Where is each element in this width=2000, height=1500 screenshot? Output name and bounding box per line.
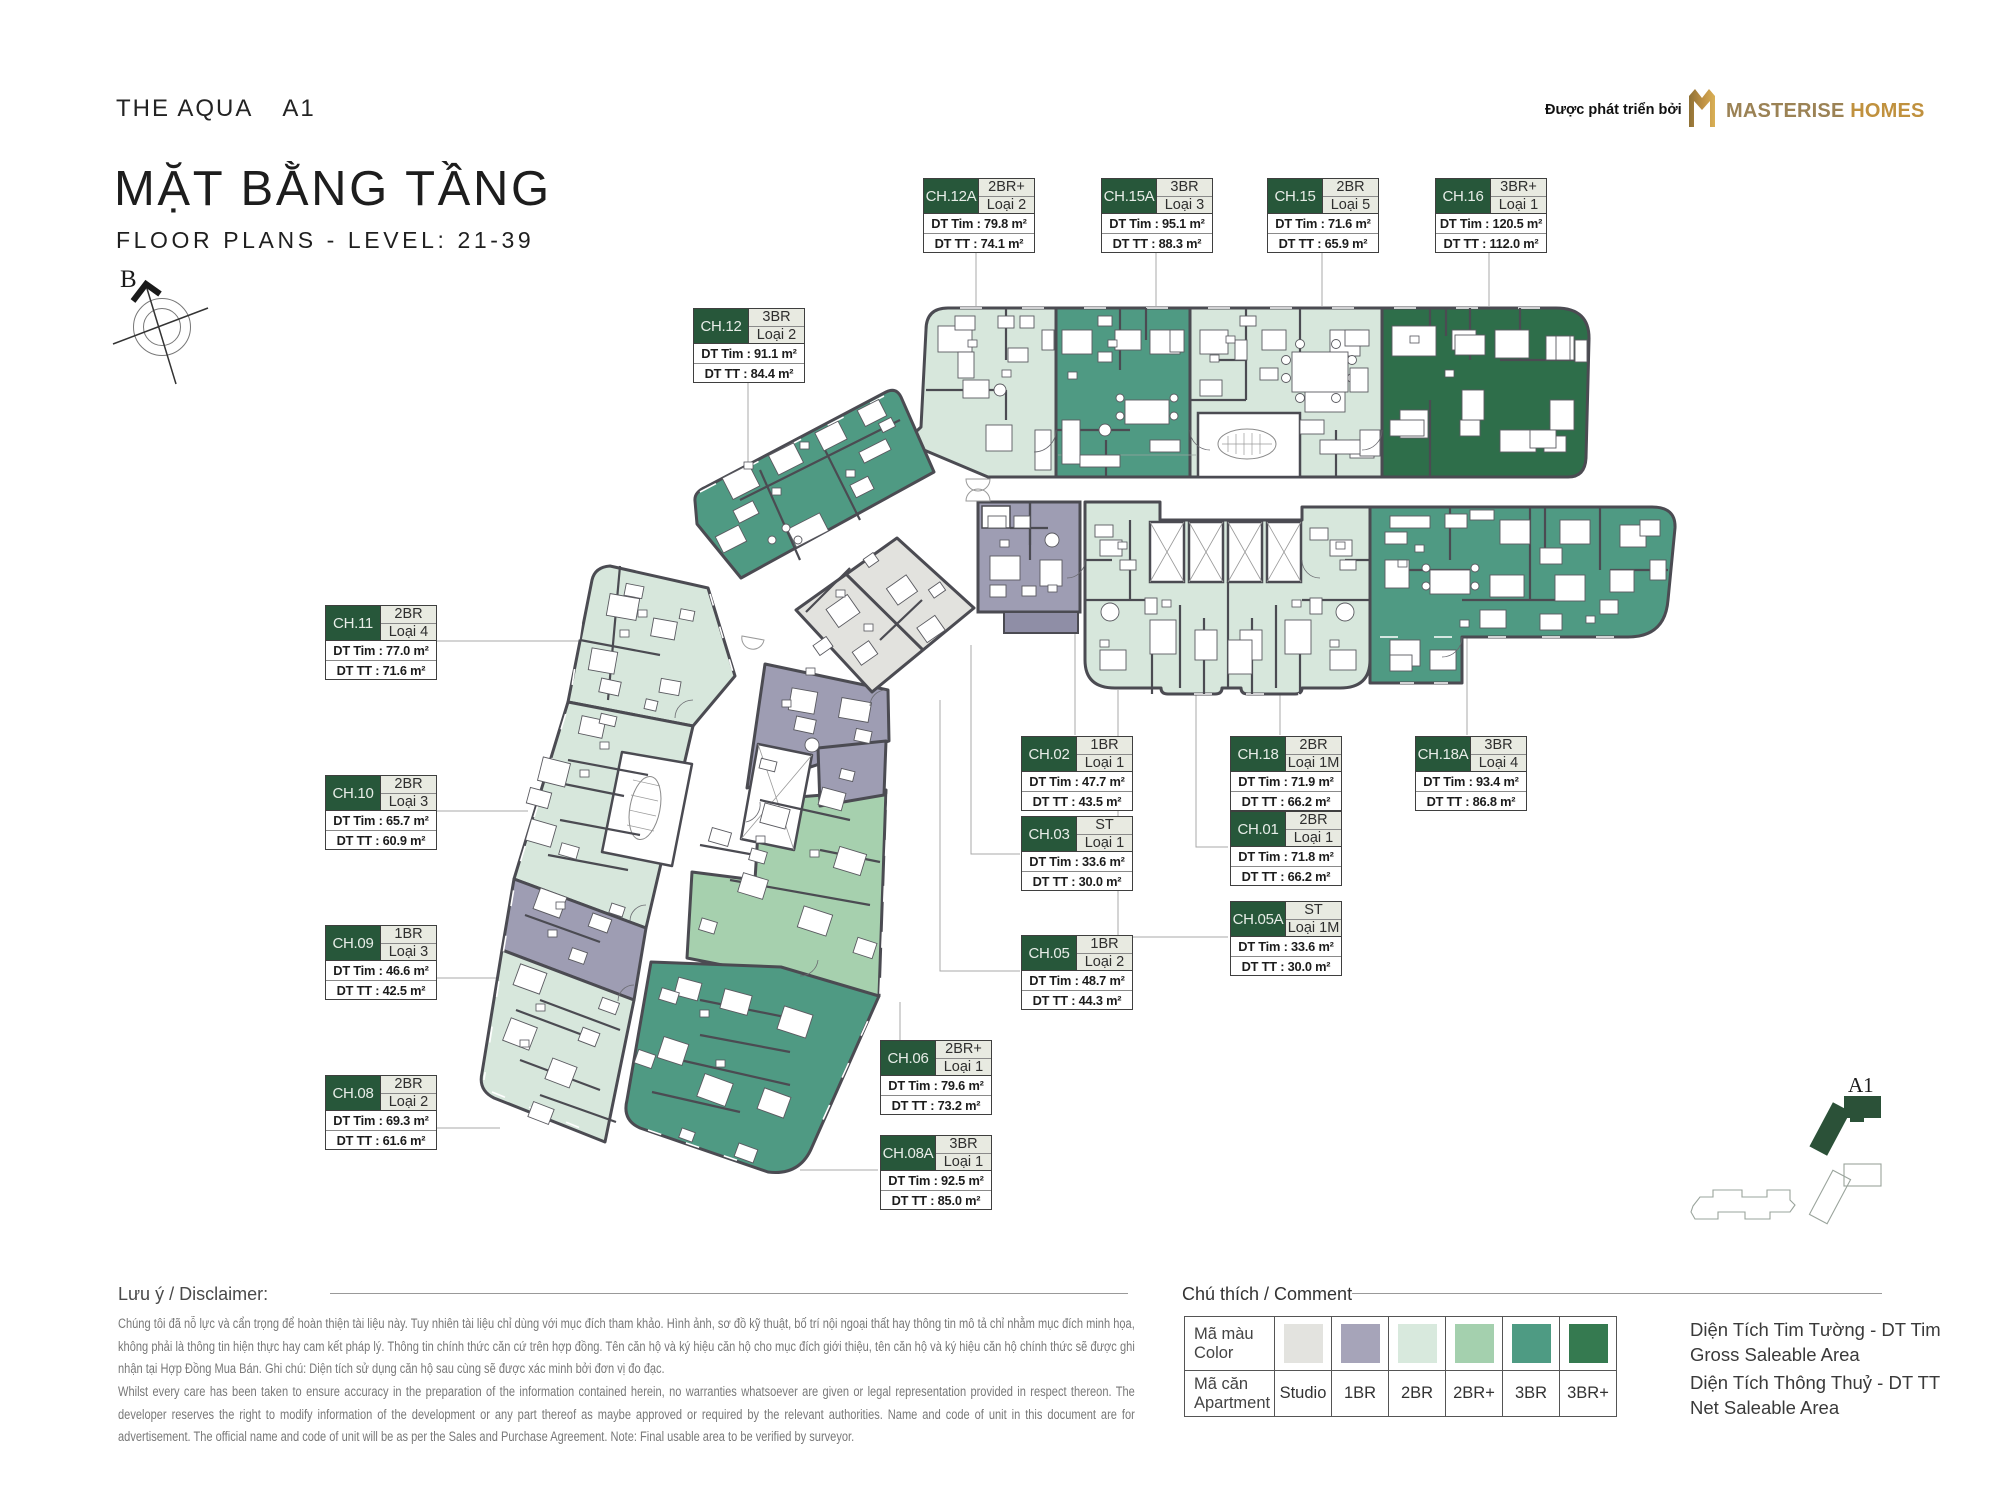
svg-text:A1: A1 [1848,1073,1874,1097]
svg-text:B: B [120,266,137,293]
